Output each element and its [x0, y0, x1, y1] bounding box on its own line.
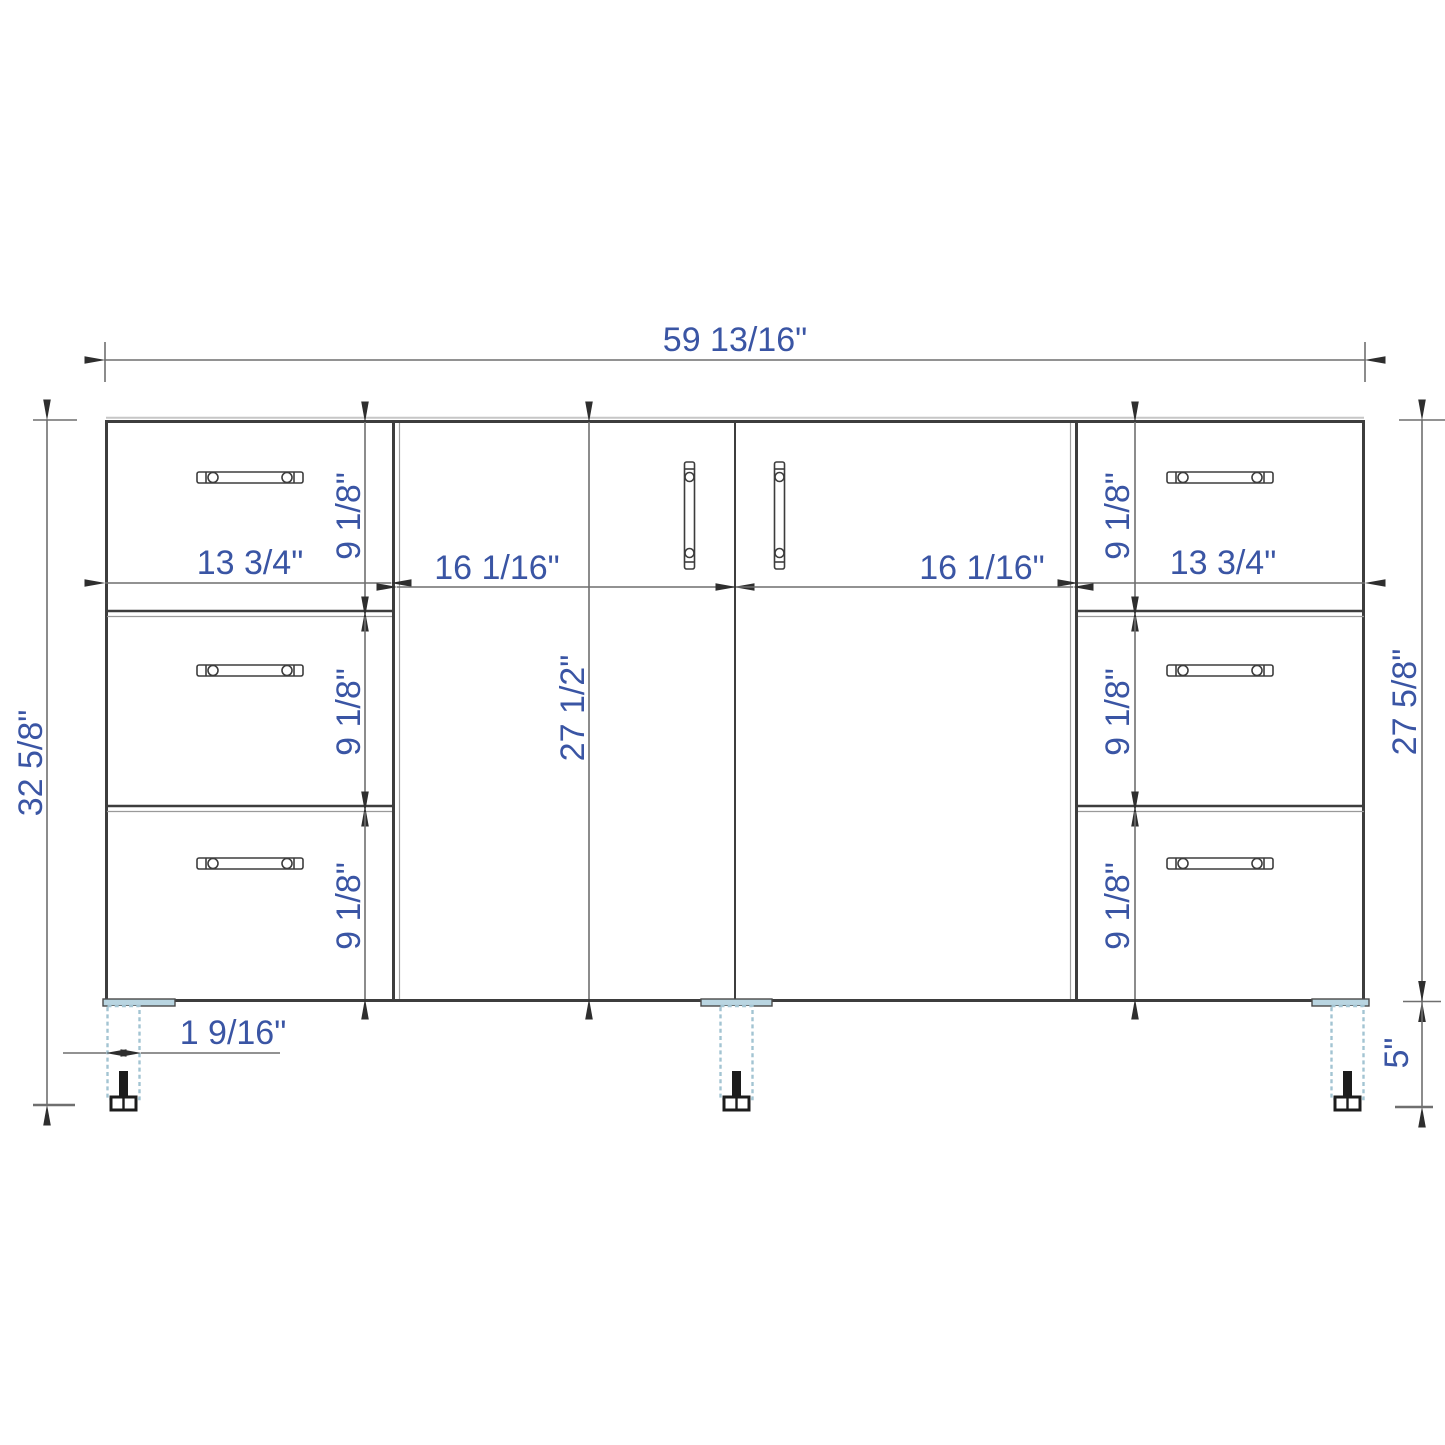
dim-label-drawer-height: 9 1/8" [1099, 668, 1137, 756]
door-handle [775, 462, 785, 569]
drawer-handle [1167, 665, 1273, 676]
dim-label-right-door-width: 16 1/16" [919, 549, 1045, 587]
dim-label-drawer-height: 9 1/8" [330, 472, 368, 560]
handle-screw-icon [1178, 473, 1188, 483]
handle-screw-icon [282, 473, 292, 483]
leg-bolt [119, 1071, 128, 1099]
dim-label-right-bank-width: 13 3/4" [1170, 544, 1277, 582]
handle-screw-icon [685, 549, 694, 558]
vanity-dimension-drawing: 59 13/16" 32 5/8" 27 5/8" 5" 13 3/4" [0, 0, 1445, 1445]
dim-label-overall-height: 32 5/8" [12, 710, 50, 817]
dim-label-leg-width: 1 9/16" [180, 1014, 287, 1052]
handle-screw-icon [1252, 859, 1262, 869]
left-leg [103, 999, 175, 1110]
handle-screw-icon [208, 666, 218, 676]
dim-label-cabinet-height: 27 5/8" [1386, 649, 1424, 756]
dim-label-drawer-height: 9 1/8" [330, 862, 368, 950]
dim-cabinet-height: 27 5/8" [1386, 420, 1445, 1002]
handle-screw-icon [1252, 666, 1262, 676]
handle-screw-icon [775, 473, 784, 482]
dim-leg-width: 1 9/16" [63, 1014, 286, 1053]
door-handle [685, 462, 695, 569]
drawer-handle [1167, 858, 1273, 869]
dim-label-drawer-height: 9 1/8" [330, 668, 368, 756]
drawer-handle [197, 472, 303, 483]
drawer-handle [197, 665, 303, 676]
handle-screw-icon [208, 859, 218, 869]
dimension-drawing-page: 59 13/16" 32 5/8" 27 5/8" 5" 13 3/4" [0, 0, 1445, 1445]
handle-screw-icon [775, 549, 784, 558]
handle-screw-icon [685, 473, 694, 482]
handle-screw-icon [282, 859, 292, 869]
handle-screw-icon [1252, 473, 1262, 483]
dim-label-drawer-height: 9 1/8" [1099, 862, 1137, 950]
handle-screw-icon [1178, 666, 1188, 676]
dim-label-left-door-width: 16 1/16" [434, 549, 560, 587]
dim-overall-width: 59 13/16" [105, 321, 1365, 382]
dim-label-leg-height: 5" [1378, 1038, 1416, 1069]
dim-label-overall-width: 59 13/16" [663, 321, 807, 359]
handle-screw-icon [1178, 859, 1188, 869]
dim-label-door-height: 27 1/2" [554, 655, 592, 762]
leg-bolt [732, 1071, 741, 1099]
handle-screw-icon [208, 473, 218, 483]
dim-overall-height: 32 5/8" [12, 420, 77, 1105]
dim-label-drawer-height: 9 1/8" [1099, 472, 1137, 560]
dim-leg-height: 5" [1378, 1002, 1433, 1108]
drawer-handle [197, 858, 303, 869]
dim-label-left-bank-width: 13 3/4" [197, 544, 304, 582]
leg-bolt [1343, 1071, 1352, 1099]
center-leg [701, 999, 772, 1110]
legs [103, 999, 1369, 1110]
right-leg [1312, 999, 1369, 1110]
cabinet-body [106, 418, 1364, 1001]
drawer-handle [1167, 472, 1273, 483]
handle-screw-icon [282, 666, 292, 676]
